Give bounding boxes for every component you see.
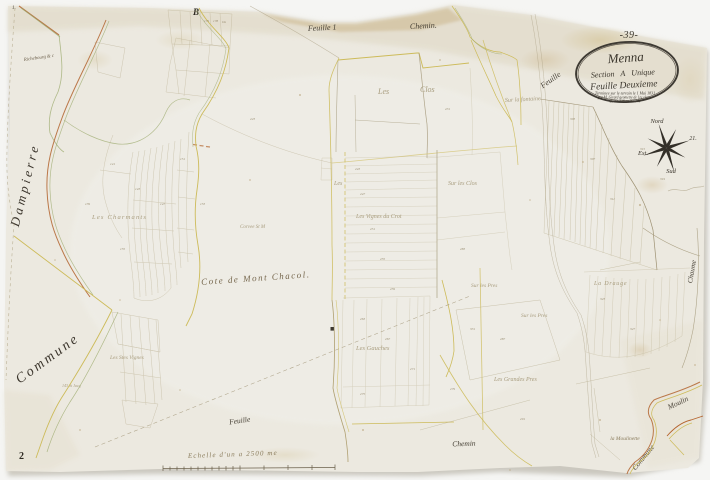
- svg-text:287: 287: [500, 337, 505, 341]
- svg-text:Les Vignes du Crot: Les Vignes du Crot: [355, 214, 402, 220]
- svg-text:la Moulinette: la Moulinette: [610, 436, 640, 442]
- svg-text:275: 275: [360, 392, 365, 396]
- svg-text:243: 243: [355, 167, 360, 171]
- svg-text:267: 267: [385, 337, 390, 341]
- svg-text:259: 259: [390, 287, 395, 291]
- svg-text:Corvee St M: Corvee St M: [240, 225, 266, 230]
- svg-text:155: 155: [120, 247, 125, 251]
- svg-text:271: 271: [410, 367, 415, 371]
- svg-text:21.: 21.: [689, 136, 697, 142]
- svg-text:179: 179: [204, 19, 209, 23]
- svg-text:Feuille 1: Feuille 1: [307, 23, 337, 34]
- svg-text:151: 151: [180, 157, 185, 161]
- svg-text:Chemin: Chemin: [452, 439, 476, 449]
- svg-text:du No 138 au No 744: du No 138 au No 744: [610, 100, 641, 104]
- svg-text:Est.: Est.: [637, 150, 648, 157]
- svg-text:307: 307: [590, 157, 595, 161]
- svg-text:Nord: Nord: [649, 118, 664, 125]
- svg-text:147: 147: [160, 202, 165, 206]
- svg-text:139: 139: [85, 202, 90, 206]
- svg-text:141: 141: [110, 162, 115, 166]
- svg-text:La Drauge: La Drauge: [593, 281, 627, 287]
- svg-text:Les Charmants: Les Charmants: [91, 214, 147, 221]
- svg-text:283: 283: [460, 247, 465, 251]
- svg-text:251: 251: [370, 227, 375, 231]
- svg-text:331: 331: [470, 327, 475, 331]
- svg-text:bis: bis: [222, 20, 227, 24]
- svg-text:327: 327: [630, 327, 635, 331]
- svg-text:Chemin.: Chemin.: [410, 21, 437, 31]
- svg-text:Sur les Pres: Sur les Pres: [521, 313, 547, 319]
- svg-text:2: 2: [19, 451, 24, 462]
- svg-text:323: 323: [600, 297, 605, 301]
- svg-text:Sud: Sud: [666, 168, 677, 175]
- svg-text:311: 311: [610, 197, 615, 201]
- svg-text:Les: Les: [333, 181, 343, 187]
- svg-text:Clos: Clos: [420, 85, 435, 94]
- svg-text:319: 319: [660, 177, 665, 181]
- svg-text:291: 291: [520, 417, 525, 421]
- svg-text:263: 263: [360, 317, 365, 321]
- svg-text:Les: Les: [377, 87, 389, 96]
- svg-text:Sur les Clos: Sur les Clos: [448, 181, 478, 187]
- svg-text:Menna: Menna: [606, 49, 645, 67]
- svg-text:143 St Jacq: 143 St Jacq: [62, 383, 81, 388]
- svg-text:255: 255: [380, 257, 385, 261]
- svg-text:-39-: -39-: [620, 30, 639, 41]
- svg-text:231: 231: [445, 107, 450, 111]
- svg-text:178: 178: [213, 19, 218, 23]
- svg-text:Les Grandes Pres: Les Grandes Pres: [493, 377, 537, 383]
- svg-text:247: 247: [360, 192, 365, 196]
- svg-text:143: 143: [135, 187, 140, 191]
- svg-text:Les Gauches: Les Gauches: [355, 345, 390, 352]
- svg-text:279: 279: [450, 387, 455, 391]
- svg-text:Les Stes Vignes: Les Stes Vignes: [109, 355, 144, 361]
- svg-text:315: 315: [640, 147, 645, 151]
- svg-text:303: 303: [570, 117, 575, 121]
- svg-text:Sur les Pres: Sur les Pres: [471, 283, 497, 289]
- svg-text:153: 153: [200, 202, 205, 206]
- svg-text:223: 223: [250, 117, 255, 121]
